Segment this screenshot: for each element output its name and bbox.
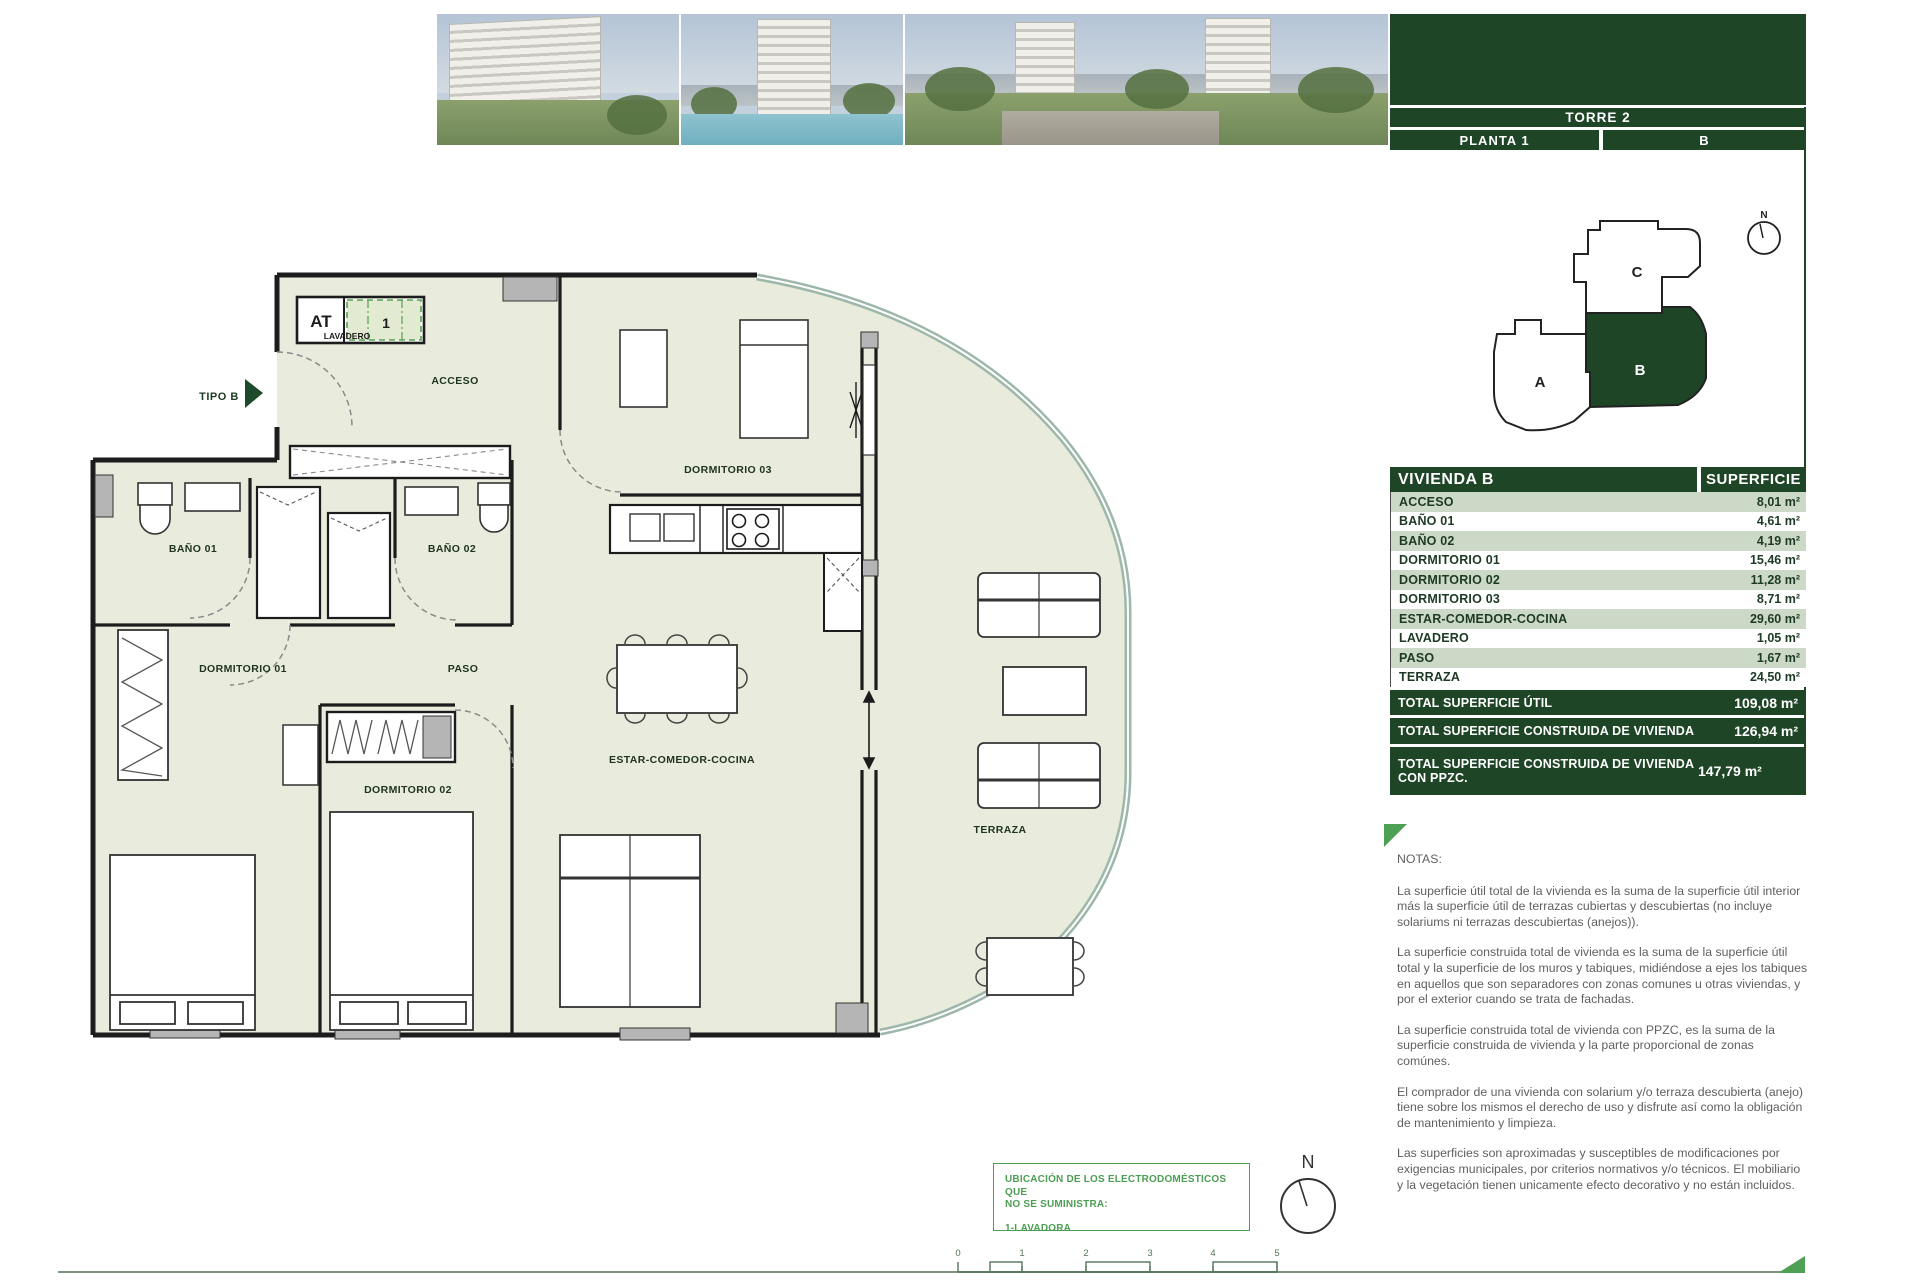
notes-paragraph: Las superficies son aproximadas y suscep…: [1397, 1146, 1809, 1193]
row-label: DORMITORIO 03: [1391, 592, 1757, 606]
appliance-item: 1-LAVADORA: [1005, 1223, 1238, 1236]
room-label-dormitorio01: DORMITORIO 01: [199, 663, 287, 675]
tree-blob: [1298, 67, 1374, 113]
keyplan-compass-circle: [1748, 222, 1780, 254]
row-value: 4,19 m²: [1757, 534, 1806, 548]
row-label: ACCESO: [1391, 495, 1757, 509]
tree-blob: [1125, 69, 1189, 109]
row-value: 4,61 m²: [1757, 514, 1806, 528]
lavadero-label: LAVADERO: [324, 331, 371, 341]
scale-tick: 5: [1274, 1248, 1279, 1259]
key-plan: C B A N: [1390, 152, 1806, 464]
room-label-bano01: BAÑO 01: [169, 542, 217, 555]
row-value: 29,60 m²: [1750, 612, 1806, 626]
total-label: TOTAL SUPERFICIE ÚTIL: [1390, 696, 1734, 710]
notes-paragraph: La superficie construida total de vivien…: [1397, 945, 1809, 1007]
row-value: 1,05 m²: [1757, 631, 1806, 645]
plan-compass: N: [1268, 1145, 1352, 1245]
row-label: LAVADERO: [1391, 631, 1757, 645]
scale-bar: 0 1 2 3 4 5: [940, 1238, 1300, 1278]
appliance-note-line2: NO SE SUMINISTRA:: [1005, 1199, 1238, 1212]
table-row: DORMITORIO 038,71 m²: [1391, 590, 1806, 610]
planta-label: PLANTA 1: [1459, 133, 1529, 148]
scale-tick: 4: [1210, 1248, 1215, 1259]
surface-table-rows: ACCESO8,01 m² BAÑO 014,61 m² BAÑO 024,19…: [1390, 492, 1806, 687]
row-label: DORMITORIO 01: [1391, 553, 1750, 567]
table-header-vivienda: VIVIENDA B: [1390, 467, 1697, 492]
scale-tick: 0: [955, 1248, 960, 1259]
table-row: DORMITORIO 0115,46 m²: [1391, 551, 1806, 571]
tree-blob: [607, 95, 667, 135]
row-value: 8,71 m²: [1757, 592, 1806, 606]
keyplan-unit-b-shape: [1586, 307, 1706, 407]
total-ppzc-row: TOTAL SUPERFICIE CONSTRUIDA DE VIVIENDA …: [1390, 747, 1806, 795]
table-header-superficie: SUPERFICIE: [1701, 467, 1806, 492]
row-value: 11,28 m²: [1751, 573, 1806, 587]
room-label-dormitorio03: DORMITORIO 03: [684, 464, 772, 476]
table-row: PASO1,67 m²: [1391, 648, 1806, 668]
notes-corner-triangle: [1384, 824, 1407, 847]
room-label-acceso: ACCESO: [431, 375, 478, 387]
row-value: 24,50 m²: [1750, 670, 1806, 684]
table-row: TERRAZA24,50 m²: [1391, 668, 1806, 688]
bedroom1-side-table: [283, 725, 318, 785]
row-label: BAÑO 02: [1391, 534, 1757, 548]
scale-tick: 1: [1019, 1248, 1024, 1259]
appliance-note-line1: UBICACIÓN DE LOS ELECTRODOMÉSTICOS QUE: [1005, 1174, 1238, 1199]
scale-tick: 3: [1147, 1248, 1152, 1259]
total-value: 126,94 m²: [1734, 723, 1806, 739]
bedroom1-bed: [110, 855, 255, 1030]
planta-cell: PLANTA 1: [1390, 130, 1599, 150]
terrace-dining: [976, 938, 1084, 995]
brochure-page: TORRE 2 PLANTA 1 B C B A N VIVIENDA B SU…: [0, 0, 1920, 1280]
row-value: 8,01 m²: [1757, 495, 1806, 509]
photo-tower-pool: [681, 14, 903, 145]
scale-tick: 2: [1083, 1248, 1088, 1259]
keyplan-compass-needle: [1760, 224, 1763, 238]
total-construida-row: TOTAL SUPERFICIE CONSTRUIDA DE VIVIENDA …: [1390, 718, 1806, 744]
pool: [681, 114, 903, 145]
notes-paragraph: La superficie construida total de vivien…: [1397, 1023, 1809, 1070]
table-row: BAÑO 024,19 m²: [1391, 531, 1806, 551]
room-label-terraza: TERRAZA: [974, 824, 1027, 836]
washer-number: 1: [382, 315, 390, 331]
unit-letter: B: [1699, 133, 1709, 148]
kitchen-column: [824, 553, 862, 631]
keyplan-label-b: B: [1635, 362, 1646, 379]
scale-bar-lines: [958, 1262, 1277, 1272]
keyplan-label-c: C: [1632, 264, 1643, 281]
notes-paragraph: La superficie útil total de la vivienda …: [1397, 884, 1809, 931]
right-wall-window: [863, 365, 875, 455]
photo-street-view: [905, 14, 1388, 145]
compass-needle: [1299, 1181, 1307, 1206]
bedroom2-bed: [330, 812, 473, 1030]
table-row: BAÑO 014,61 m²: [1391, 512, 1806, 532]
dining-table: [617, 645, 737, 713]
row-value: 15,46 m²: [1750, 553, 1806, 567]
room-label-dormitorio02: DORMITORIO 02: [364, 784, 452, 796]
torre-label: TORRE 2: [1565, 110, 1630, 125]
hall-wardrobe: [290, 446, 510, 478]
torre-bar: TORRE 2: [1390, 108, 1806, 127]
surface-table: VIVIENDA B SUPERFICIE ACCESO8,01 m² BAÑO…: [1390, 467, 1806, 795]
table-row: LAVADERO1,05 m²: [1391, 629, 1806, 649]
keyplan-compass-n: N: [1760, 210, 1767, 221]
notes-paragraph: El comprador de una vivienda con solariu…: [1397, 1085, 1809, 1132]
living-sofa: [560, 835, 700, 1007]
total-label: TOTAL SUPERFICIE CONSTRUIDA DE VIVIENDA: [1390, 724, 1734, 738]
room-label-paso: PASO: [448, 663, 479, 675]
room-label-bano02: BAÑO 02: [428, 542, 476, 555]
building-render: [1205, 18, 1271, 100]
room-label-estar: ESTAR-COMEDOR-COCINA: [609, 754, 755, 766]
total-value: 147,79 m²: [1698, 763, 1770, 779]
bottom-rule: [58, 1271, 1805, 1273]
row-value: 1,67 m²: [1757, 651, 1806, 665]
building-render: [1015, 22, 1075, 98]
compass-n: N: [1302, 1152, 1315, 1172]
keyplan-label-a: A: [1535, 374, 1546, 391]
table-row: ACCESO8,01 m²: [1391, 492, 1806, 512]
total-value: 109,08 m²: [1734, 695, 1806, 711]
row-label: PASO: [1391, 651, 1757, 665]
unit-letter-cell: B: [1603, 130, 1806, 150]
tipo-label: TIPO B: [199, 391, 239, 403]
row-label: ESTAR-COMEDOR-COCINA: [1391, 612, 1750, 626]
scale-bar-ticks: 0 1 2 3 4 5: [955, 1248, 1279, 1259]
at-label: AT: [310, 312, 332, 331]
row-label: BAÑO 01: [1391, 514, 1757, 528]
floor-plan: AT LAVADERO 1: [0, 190, 1160, 1060]
building-render: [757, 19, 831, 117]
total-util-row: TOTAL SUPERFICIE ÚTIL 109,08 m²: [1390, 690, 1806, 715]
row-label: DORMITORIO 02: [1391, 573, 1751, 587]
surface-table-header: VIVIENDA B SUPERFICIE: [1390, 467, 1806, 492]
appliance-note-box: UBICACIÓN DE LOS ELECTRODOMÉSTICOS QUE N…: [993, 1163, 1250, 1231]
compass-circle: [1281, 1179, 1335, 1233]
notes-block: NOTAS: La superficie útil total de la vi…: [1397, 852, 1809, 1208]
tipo-arrow: [245, 379, 263, 408]
notes-title: NOTAS:: [1397, 852, 1809, 868]
total-label: TOTAL SUPERFICIE CONSTRUIDA DE VIVIENDA …: [1390, 757, 1698, 785]
bottom-corner-triangle: [1778, 1256, 1805, 1273]
row-label: TERRAZA: [1391, 670, 1750, 684]
photo-building-closeup: [437, 14, 679, 145]
panel-header-block: [1390, 14, 1806, 105]
table-row: DORMITORIO 0211,28 m²: [1391, 570, 1806, 590]
table-row: ESTAR-COMEDOR-COCINA29,60 m²: [1391, 609, 1806, 629]
tree-blob: [925, 67, 995, 111]
photo-path: [1002, 111, 1219, 145]
bedroom2-wardrobe: [327, 712, 455, 762]
